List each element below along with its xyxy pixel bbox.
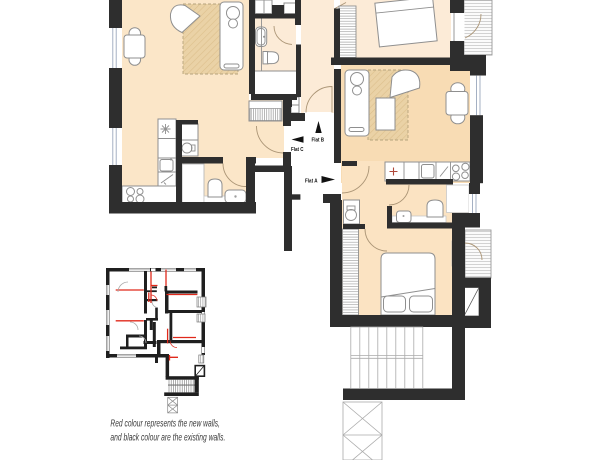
svg-text:Red colour represents the new: Red colour represents the new walls, [110,419,219,430]
svg-text:Flat B: Flat B [312,138,325,144]
svg-text:and black colour are the exist: and black colour are the existing walls. [110,433,225,444]
svg-text:Flat A: Flat A [305,179,318,185]
svg-text:Flat C: Flat C [291,147,304,153]
